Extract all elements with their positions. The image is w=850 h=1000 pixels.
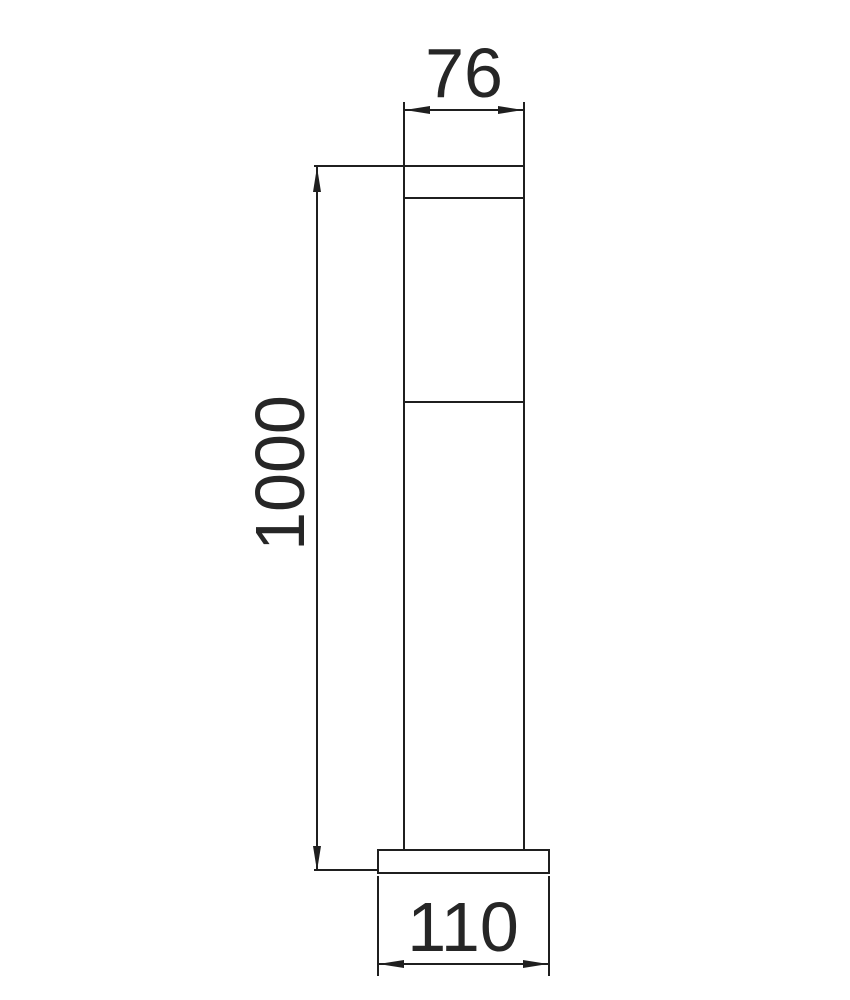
dim-height-arrowhead-down-icon <box>313 846 321 871</box>
dim-height-extension-line-top <box>314 165 403 167</box>
dim-height-extension-line-bottom <box>314 869 377 871</box>
dim-base-width-label: 110 <box>363 890 563 964</box>
post-diffuser-bottom-seam-line <box>403 401 525 403</box>
post-left-edge <box>403 110 405 850</box>
base-plate-outline <box>377 849 550 874</box>
technical-drawing-canvas: 76 1000 110 <box>0 0 850 1000</box>
post-cap-seam-line <box>403 165 525 167</box>
post-diffuser-top-seam-line <box>403 197 525 199</box>
dim-top-width-label: 76 <box>364 36 564 110</box>
post-right-edge <box>523 110 525 850</box>
dim-height-label: 1000 <box>243 363 317 583</box>
dim-height-arrowhead-up-icon <box>313 167 321 192</box>
